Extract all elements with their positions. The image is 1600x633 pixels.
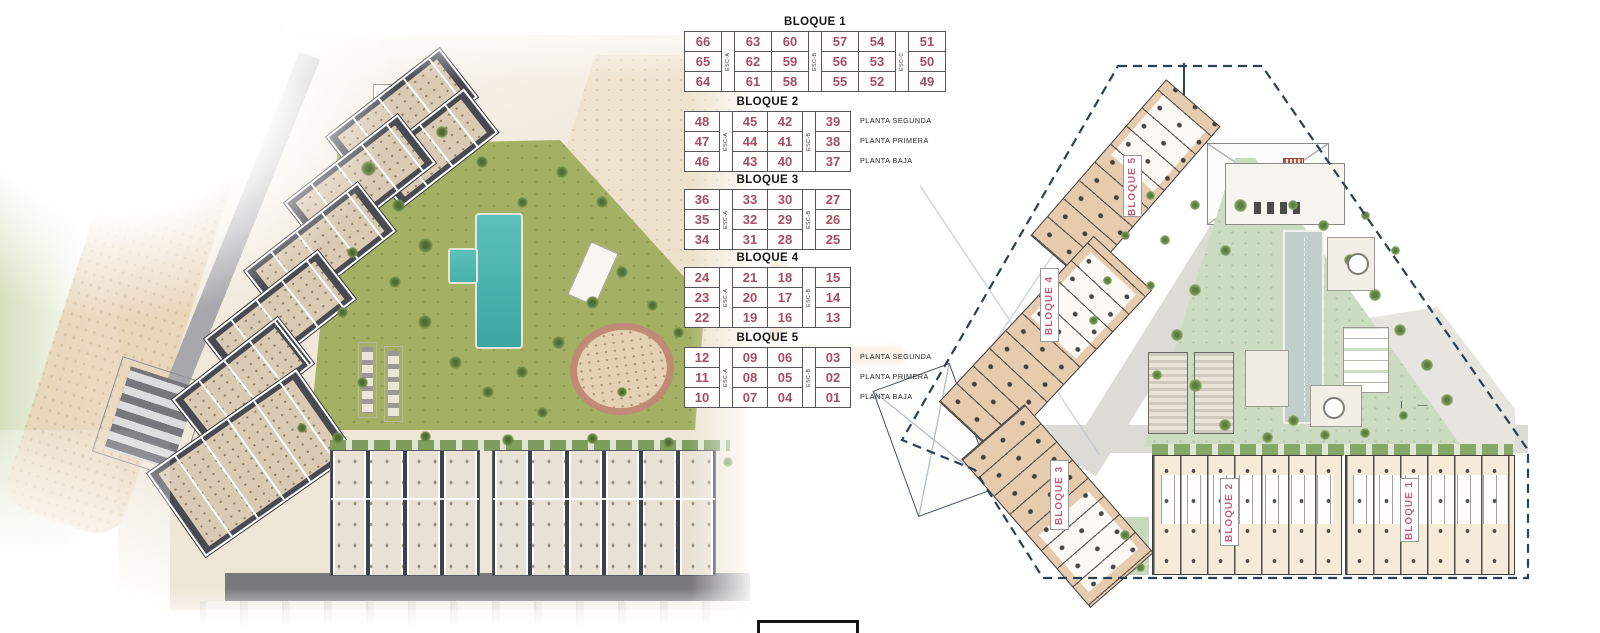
tree-icon <box>1361 211 1370 220</box>
unit-number-cell: 36 <box>685 190 719 209</box>
unit-number-cell: 08 <box>733 368 767 387</box>
floor-label: PLANTA PRIMERA <box>860 131 932 151</box>
floor-label: PLANTA SEGUNDA <box>860 111 932 131</box>
stairwell-label: ESC-C <box>896 32 908 91</box>
plan-block-bloque-2 <box>1152 455 1342 575</box>
unit-number-cell: 50 <box>909 52 945 71</box>
palm-tree-icon <box>361 161 376 176</box>
aerial-render <box>0 0 770 633</box>
unit-number-cell: 16 <box>768 308 802 327</box>
tree-icon <box>1369 289 1381 301</box>
unit-number-cell: 52 <box>859 72 895 91</box>
unit-number-cell: 02 <box>816 368 850 387</box>
tree-icon <box>1146 191 1155 200</box>
palm-tree-icon <box>723 457 733 467</box>
unit-number-cell: 34 <box>685 230 719 249</box>
plan-label-bloque-2: BLOQUE 2 <box>1220 478 1239 546</box>
unit-number-cell: 61 <box>735 72 771 91</box>
unit-number-cell: 35 <box>685 210 719 229</box>
palm-tree-icon <box>673 327 684 338</box>
tree-icon <box>1399 411 1408 420</box>
unit-number-cell: 14 <box>816 288 850 307</box>
tree-icon <box>1234 199 1247 212</box>
parasol-icon <box>1323 397 1345 419</box>
unit-number-cell: 65 <box>685 52 721 71</box>
parasol-icon <box>1347 253 1369 275</box>
unit-number-cell: 24 <box>685 268 719 287</box>
unit-number-cell: 23 <box>685 288 719 307</box>
plan-label-bloque-1: BLOQUE 1 <box>1400 478 1419 542</box>
swimming-pool <box>475 213 523 349</box>
plan-label-bloque-5: BLOQUE 5 <box>1123 155 1142 217</box>
palm-tree-icon <box>663 437 674 448</box>
palm-tree-icon <box>647 300 658 311</box>
tree-icon <box>1394 324 1406 336</box>
stairwell-label: ESC-B <box>803 348 815 407</box>
floor-labels: PLANTA SEGUNDAPLANTA PRIMERAPLANTA BAJA <box>860 111 932 171</box>
tree-icon <box>1190 200 1200 210</box>
table-title: BLOQUE 5 <box>684 332 851 344</box>
palm-tree-icon <box>537 407 548 418</box>
palm-tree-icon <box>482 386 494 398</box>
tree-icon <box>1089 316 1098 325</box>
site-plan-sheet: BLOQUE 1ESC-AESC-BESC-C66636057545165625… <box>0 0 1600 633</box>
floor-label: PLANTA BAJA <box>860 151 932 171</box>
stairwell-label: ESC-A <box>722 32 734 91</box>
cutoff-legend-box <box>757 620 859 633</box>
palm-tree-icon <box>297 423 307 433</box>
unit-number-cell: 47 <box>685 132 719 151</box>
stairwell-label: ESC-A <box>720 268 732 327</box>
unit-number-cell: 07 <box>733 388 767 407</box>
plan-block-bloque-1 <box>1345 455 1515 575</box>
palm-tree-icon <box>420 431 431 442</box>
palm-tree-icon <box>347 247 358 258</box>
unit-number-cell: 33 <box>733 190 767 209</box>
table-title: BLOQUE 1 <box>684 16 946 28</box>
tree-icon <box>1189 284 1201 296</box>
tree-icon <box>1160 235 1170 245</box>
palm-tree-icon <box>392 199 405 212</box>
tree-icon <box>1171 329 1183 341</box>
unit-number-cell: 27 <box>816 190 850 209</box>
tree-icon <box>1103 276 1112 285</box>
floor-label: PLANTA SEGUNDA <box>860 347 932 367</box>
unit-number-cell: 62 <box>735 52 771 71</box>
tree-icon <box>1219 419 1231 431</box>
plan-label-bloque-3: BLOQUE 3 <box>1050 460 1069 530</box>
unit-number-cell: 41 <box>768 132 802 151</box>
unit-number-cell: 29 <box>768 210 802 229</box>
unit-table-bloque-4: BLOQUE 4ESC-AESC-B2421181523201714221916… <box>684 252 851 328</box>
tree-icon <box>1318 220 1329 231</box>
unit-number-cell: 11 <box>685 368 719 387</box>
tree-icon <box>1360 428 1370 438</box>
tree-icon <box>1136 563 1145 572</box>
tree-icon <box>1121 231 1130 240</box>
unit-number-cell: 30 <box>768 190 802 209</box>
tree-icon <box>1262 432 1273 443</box>
tree-icon <box>1120 530 1130 540</box>
stairwell-label: ESC-A <box>720 190 732 249</box>
plan-clubhouse <box>1225 163 1345 225</box>
table-title: BLOQUE 2 <box>684 96 851 108</box>
palm-tree-icon <box>389 276 401 288</box>
carport-canopy <box>1148 352 1188 434</box>
unit-number-cell: 15 <box>816 268 850 287</box>
tree-icon <box>1220 245 1231 256</box>
palm-tree-icon <box>502 434 514 446</box>
kids-pool <box>448 248 478 284</box>
tree-icon <box>1152 370 1162 380</box>
stairwell-label: ESC-B <box>803 112 815 171</box>
unit-number-cell: 10 <box>685 388 719 407</box>
unit-number-cell: 20 <box>733 288 767 307</box>
unit-number-cell: 60 <box>772 32 808 51</box>
unit-number-cell: 05 <box>768 368 802 387</box>
palm-tree-icon <box>418 315 432 329</box>
floor-labels: PLANTA SEGUNDAPLANTA PRIMERAPLANTA BAJA <box>860 347 932 407</box>
palm-tree-icon <box>596 196 608 208</box>
unit-table-bloque-5: BLOQUE 5ESC-AESC-B1209060311080502100704… <box>684 332 851 408</box>
palm-tree-icon <box>552 336 565 349</box>
unit-number-cell: 43 <box>733 152 767 171</box>
stairwell-label: ESC-B <box>803 190 815 249</box>
unit-number-cell: 49 <box>909 72 945 91</box>
unit-number-cell: 06 <box>768 348 802 367</box>
unit-number-cell: 66 <box>685 32 721 51</box>
unit-number-cell: 12 <box>685 348 719 367</box>
unit-number-cell: 64 <box>685 72 721 91</box>
parking-stalls <box>1343 327 1389 393</box>
unit-number-cell: 01 <box>816 388 850 407</box>
unit-number-cell: 32 <box>733 210 767 229</box>
palm-tree-icon <box>337 307 348 318</box>
tree-icon <box>1189 379 1202 392</box>
palm-tree-icon <box>517 197 528 208</box>
unit-number-cell: 21 <box>733 268 767 287</box>
tree-icon <box>1421 359 1433 371</box>
unit-number-cell: 38 <box>816 132 850 151</box>
townhouse-row <box>492 450 716 576</box>
unit-number-cell: 54 <box>859 32 895 51</box>
unit-number-cell: 26 <box>816 210 850 229</box>
palm-tree-icon <box>418 238 433 253</box>
unit-number-cell: 28 <box>768 230 802 249</box>
unit-number-cell: 58 <box>772 72 808 91</box>
faded-house-row <box>200 601 745 633</box>
unit-table-bloque-2: BLOQUE 2ESC-AESC-B4845423947444138464340… <box>684 96 851 172</box>
palm-tree-icon <box>476 156 488 168</box>
tree-icon <box>1288 200 1298 210</box>
unit-number-cell: 19 <box>733 308 767 327</box>
palm-tree-icon <box>617 387 627 397</box>
unit-number-cell: 31 <box>733 230 767 249</box>
palm-tree-icon <box>357 377 368 388</box>
unit-number-cell: 17 <box>768 288 802 307</box>
unit-number-cell: 48 <box>685 112 719 131</box>
tree-icon <box>1391 246 1400 255</box>
floor-label: PLANTA PRIMERA <box>860 367 932 387</box>
unit-number-cell: 18 <box>768 268 802 287</box>
unit-number-cell: 22 <box>685 308 719 327</box>
palm-tree-icon <box>556 166 568 178</box>
palm-tree-icon <box>449 356 462 369</box>
unit-number-cell: 39 <box>816 112 850 131</box>
plan-pergola <box>1245 350 1289 407</box>
table-title: BLOQUE 4 <box>684 252 851 264</box>
unit-number-cell: 37 <box>816 152 850 171</box>
garden-parking-strip <box>384 346 403 422</box>
unit-number-cell: 40 <box>768 152 802 171</box>
palm-tree-icon <box>332 432 344 444</box>
stairwell-label: ESC-B <box>809 32 821 91</box>
bottom-road <box>225 573 750 601</box>
palm-tree-icon <box>616 266 628 278</box>
tree-icon <box>1320 430 1330 440</box>
play-equipment-icons: I — <box>1400 400 1460 436</box>
table-title: BLOQUE 3 <box>684 174 851 186</box>
palm-tree-icon <box>587 433 598 444</box>
unit-number-cell: 57 <box>822 32 858 51</box>
unit-number-cell: 53 <box>859 52 895 71</box>
stairwell-label: ESC-A <box>720 348 732 407</box>
unit-number-cell: 63 <box>735 32 771 51</box>
unit-table-bloque-1: BLOQUE 1ESC-AESC-BESC-C66636057545165625… <box>684 16 946 92</box>
palm-tree-icon <box>586 296 599 309</box>
unit-number-cell: 51 <box>909 32 945 51</box>
tree-icon <box>1146 281 1155 290</box>
unit-table-bloque-3: BLOQUE 3ESC-AESC-B3633302735322926343128… <box>684 174 851 250</box>
unit-number-cell: 45 <box>733 112 767 131</box>
plan-label-bloque-4: BLOQUE 4 <box>1040 268 1059 342</box>
unit-number-cell: 13 <box>816 308 850 327</box>
unit-number-cell: 04 <box>768 388 802 407</box>
unit-number-cell: 55 <box>822 72 858 91</box>
floor-label: PLANTA BAJA <box>860 387 932 407</box>
unit-number-cell: 42 <box>768 112 802 131</box>
unit-number-cell: 44 <box>733 132 767 151</box>
townhouse-row <box>330 450 480 576</box>
unit-number-cell: 59 <box>772 52 808 71</box>
palm-tree-icon <box>516 366 528 378</box>
tree-icon <box>1288 415 1299 426</box>
tree-icon <box>1441 394 1453 406</box>
stairwell-label: ESC-A <box>720 112 732 171</box>
unit-number-cell: 25 <box>816 230 850 249</box>
unit-number-cell: 09 <box>733 348 767 367</box>
architectural-site-plan: I — BLOQUE 5 BLOQUE 4 BLOQUE 3 BLOQUE 2 … <box>895 55 1545 600</box>
unit-number-cell: 56 <box>822 52 858 71</box>
palm-tree-icon <box>436 126 448 138</box>
stairwell-label: ESC-B <box>803 268 815 327</box>
unit-number-cell: 03 <box>816 348 850 367</box>
unit-number-cell: 46 <box>685 152 719 171</box>
